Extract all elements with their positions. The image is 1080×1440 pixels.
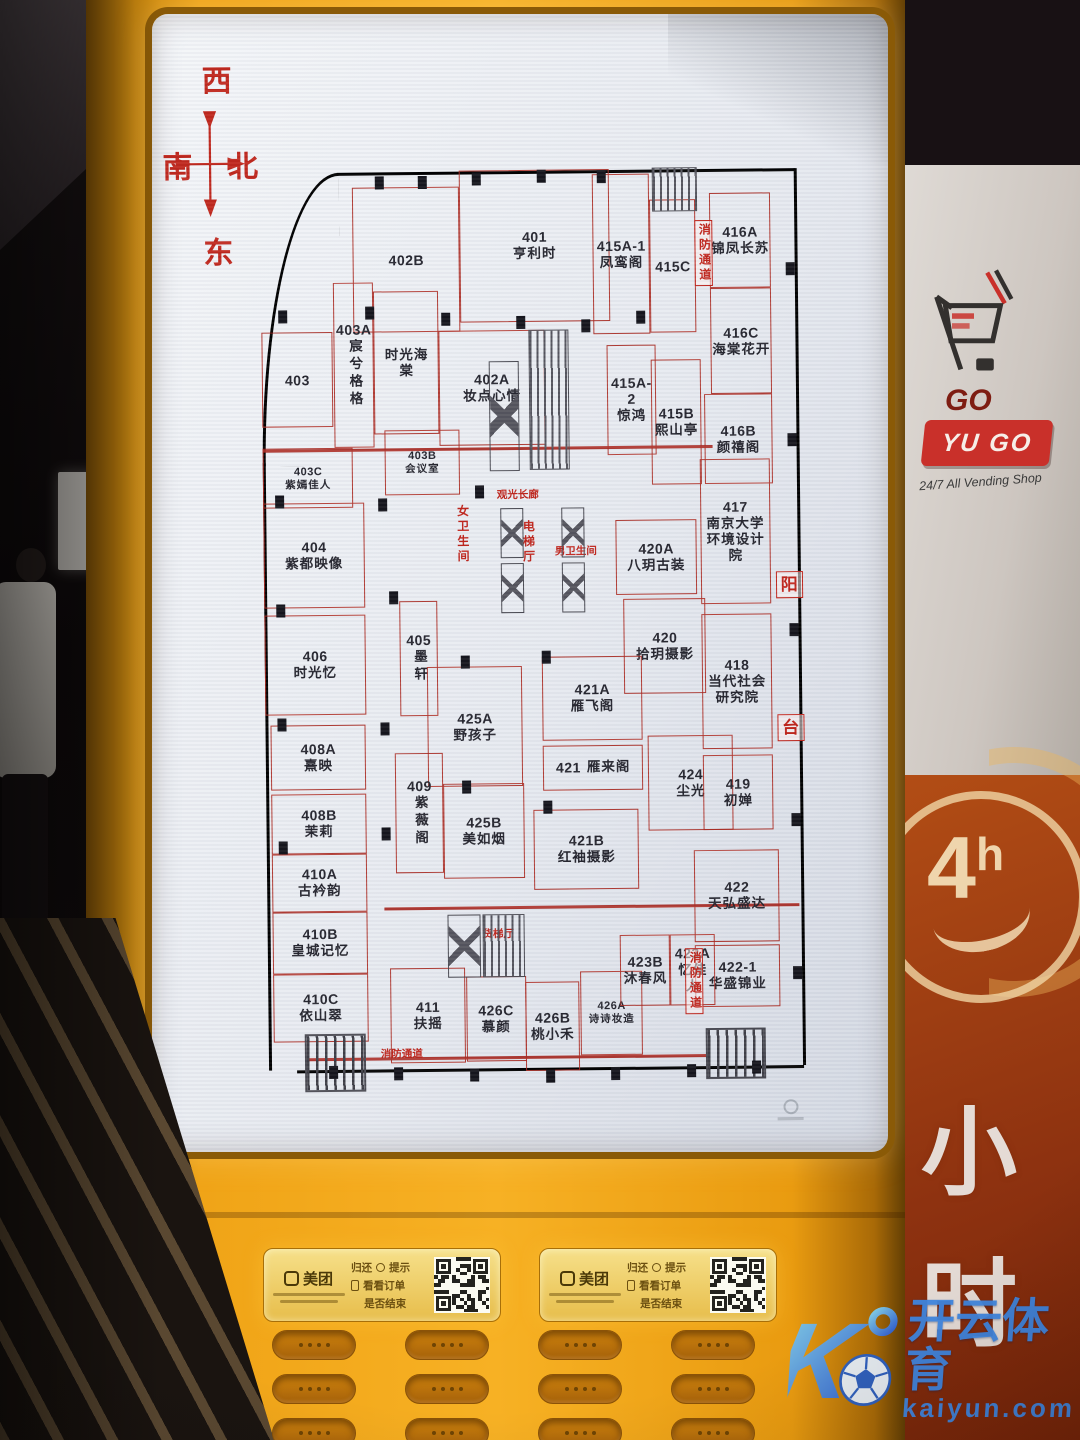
room-number: 423B	[627, 953, 663, 969]
room-416C: 416C海棠花开	[710, 288, 772, 394]
room-name: 雁飞阁	[571, 698, 615, 715]
facility-消防通道: 消防通道	[694, 220, 712, 286]
meituan-brand: 美团	[550, 1268, 619, 1303]
fine-print-line	[273, 1293, 345, 1296]
powerbank-slot	[671, 1374, 755, 1404]
door-tick	[537, 169, 546, 182]
person-legs	[2, 774, 48, 924]
hint-return: 归还	[627, 1260, 648, 1275]
room-number: 415A-2	[608, 375, 655, 407]
room-420A: 420A八玥古装	[616, 519, 697, 595]
yugo-label: YU GO	[940, 429, 1034, 458]
room-name: 亨利时	[513, 246, 557, 263]
meituan-brand: 美团	[274, 1268, 343, 1303]
hint-finished: 是否结束	[364, 1296, 406, 1311]
room-number: 406	[303, 648, 328, 664]
door-tick	[418, 176, 427, 189]
room-name: 熹映	[304, 758, 333, 774]
hint-tip: 提示	[665, 1260, 686, 1275]
hatched-area	[652, 167, 697, 212]
vendor-text-bar	[778, 1117, 804, 1120]
hint-tip: 提示	[389, 1260, 410, 1275]
door-tick	[278, 842, 287, 855]
hatched-area	[483, 914, 525, 977]
person-torso	[0, 582, 56, 778]
door-tick	[786, 262, 795, 275]
hint-check-order: 看看订单	[363, 1278, 405, 1293]
fine-print-line	[280, 1300, 338, 1303]
door-tick	[277, 718, 286, 731]
room-number: 410B	[302, 926, 338, 942]
room-number: 422-1	[718, 959, 756, 975]
room-number: 425A	[457, 710, 493, 726]
cart-icon	[919, 265, 1029, 377]
room-426C: 426C慕颜	[466, 976, 527, 1061]
screen-vendor-logo	[776, 1099, 806, 1125]
room-number: 416B	[721, 422, 757, 438]
room-number: 403B	[408, 450, 436, 462]
room-name: 古衿韵	[298, 883, 342, 900]
room-number: 415C	[655, 258, 691, 274]
room-426B: 426B桃小禾	[525, 981, 580, 1070]
facility-女卫生间: 女卫生间	[455, 505, 469, 565]
room-时光海棠: 时光海棠	[373, 291, 439, 434]
meituan-app-icon	[560, 1271, 575, 1286]
door-tick	[636, 311, 645, 324]
elevator-shaft	[500, 508, 524, 558]
room-number: 415B	[659, 405, 695, 421]
powerbank-slot	[405, 1330, 489, 1360]
door-tick	[546, 1069, 555, 1082]
room-416A: 416A锦凤长苏	[709, 193, 771, 289]
room-419: 419初婵	[703, 754, 774, 830]
room-425B: 425B美如烟	[444, 783, 525, 879]
room-number: 421	[556, 760, 581, 776]
room-410C: 410C依山翠	[273, 973, 368, 1042]
door-tick	[365, 306, 374, 319]
door-tick	[542, 651, 551, 664]
room-name: 紫都映像	[285, 556, 343, 573]
room-name: 红袖摄影	[558, 849, 616, 866]
room-name: 惊鸿	[617, 408, 646, 424]
meituan-brand-label: 美团	[579, 1268, 609, 1289]
room-name: 天弘盛达	[708, 896, 766, 913]
compass: 西 南 北 东	[161, 55, 259, 272]
door-tick	[793, 966, 802, 979]
room-421B: 421B红袖摄影	[534, 809, 640, 890]
room-name: 宸兮格格	[346, 339, 363, 409]
door-tick	[278, 310, 287, 323]
room-number: 402B	[389, 251, 425, 267]
facility-消防通道: 消防通道	[381, 1048, 423, 1061]
door-tick	[752, 1060, 761, 1073]
room-number: 408A	[301, 741, 337, 757]
yugo-badge: YU GO	[921, 420, 1054, 466]
room-name: 雁来阁	[587, 759, 631, 776]
room-number: 420A	[638, 540, 674, 556]
room-name: 会议室	[405, 463, 440, 476]
room-number: 416C	[723, 324, 759, 340]
door-tick	[517, 316, 526, 329]
door-tick	[380, 723, 389, 736]
door-tick	[276, 605, 285, 618]
staircase	[304, 1033, 366, 1093]
room-name: 墨轩	[411, 649, 428, 684]
room-number: 426B	[535, 1009, 571, 1025]
room-name: 八玥古装	[627, 557, 685, 574]
room-415A-2: 415A-2惊鸿	[607, 344, 656, 455]
hint-check-order: 看看订单	[639, 1278, 681, 1293]
powerbank-slot	[671, 1330, 755, 1360]
room-name: 紫薇阁	[411, 795, 428, 848]
compass-east-label: 东	[203, 228, 233, 272]
floorplan: 402B401亨利时415A-1凤鸾阁415C416A锦凤长苏403A宸兮格格4…	[255, 148, 807, 1105]
door-tick	[390, 591, 399, 604]
room-number: 411	[416, 999, 440, 1015]
room-404: 404紫都映像	[263, 502, 364, 609]
room-421A: 421A雁飞阁	[542, 655, 643, 741]
room-name: 慕颜	[482, 1019, 511, 1035]
door-tick	[543, 801, 552, 814]
hint-return: 归还	[351, 1260, 372, 1275]
room-name: 当代社会研究院	[706, 673, 768, 706]
door-tick	[461, 655, 470, 668]
room-number: 417	[723, 498, 748, 514]
room-name: 尘光	[676, 783, 705, 799]
room-name: 拾玥摄影	[636, 646, 694, 663]
door-tick	[596, 170, 605, 183]
meituan-brand-label: 美团	[303, 1268, 333, 1289]
powerbank-slot	[405, 1418, 489, 1440]
door-tick	[475, 486, 484, 499]
door-tick	[792, 814, 801, 827]
scene: 西 南 北 东 402B401亨利时415A-1凤鸾阁415C416A锦凤长苏4…	[0, 0, 1080, 1440]
room-403B: 403B会议室	[385, 430, 460, 495]
compass-south-label: 南	[162, 143, 192, 187]
room-number: 404	[302, 539, 327, 555]
powerbank-slot	[538, 1418, 622, 1440]
room-417: 417南京大学环境设计院	[700, 458, 772, 604]
facility-消防通道: 消防通道	[685, 948, 703, 1014]
room-name: 时光忆	[294, 665, 338, 682]
meituan-qr-panel: 美团 归还 提示 看看订单 是否结束	[263, 1248, 501, 1322]
door-tick	[275, 496, 284, 509]
hours-badge: 4h	[905, 791, 1080, 1003]
go-label: GO	[945, 384, 1069, 418]
compass-west-label: 西	[201, 56, 231, 100]
powerbank-slot	[538, 1374, 622, 1404]
powerbank-slot	[405, 1374, 489, 1404]
compass-north-label: 北	[228, 142, 258, 186]
badge-number: 4	[927, 818, 976, 917]
room-number: 408B	[301, 807, 337, 823]
door-tick	[462, 781, 471, 794]
powerbank-slot	[538, 1330, 622, 1360]
elevator-shaft	[561, 508, 585, 558]
elevator-shaft	[447, 915, 481, 978]
room-name: 茉莉	[305, 824, 334, 840]
outer-wall-right	[794, 169, 806, 1065]
watermark: K 开云体育 kaiyun.com	[786, 1296, 1080, 1422]
qr-code	[710, 1257, 766, 1313]
room-name: 熙山亭	[655, 422, 699, 439]
facility-台: 台	[777, 714, 804, 742]
room-number: 410A	[302, 866, 338, 882]
room-number: 403A	[336, 322, 372, 338]
person-silhouette	[0, 548, 70, 948]
room-408A: 408A熹映	[271, 725, 366, 791]
room-number: 422	[724, 879, 749, 895]
fine-print-line	[549, 1293, 621, 1296]
room-number: 421B	[569, 832, 605, 848]
room-number: 405	[406, 632, 431, 648]
vendor-ring-icon	[783, 1099, 798, 1114]
elevator-shaft	[561, 563, 585, 613]
room-name: 诗诗妆造	[589, 1013, 635, 1026]
phone-icon	[627, 1280, 635, 1291]
room-number: 421A	[575, 681, 611, 697]
bulb-icon	[652, 1263, 661, 1272]
door-tick	[582, 319, 591, 332]
door-tick	[472, 173, 481, 186]
room-name: 锦凤长苏	[711, 241, 769, 258]
room-number: 426C	[478, 1002, 514, 1018]
facility-观光长廊: 观光长廊	[497, 489, 539, 502]
elevator-shaft	[500, 563, 524, 613]
door-tick	[441, 313, 450, 326]
fine-print-line	[556, 1300, 614, 1303]
watermark-brand: 开云体育	[903, 1296, 1080, 1395]
rental-hints: 归还 提示 看看订单 是否结束	[351, 1260, 426, 1311]
powerbank-slot	[671, 1418, 755, 1440]
hint-finished: 是否结束	[640, 1296, 682, 1311]
door-tick	[611, 1067, 620, 1080]
k-sports-logo: K	[786, 1297, 904, 1421]
room-name: 初婵	[724, 792, 753, 808]
room-401: 401亨利时	[459, 169, 611, 323]
powerbank-slot	[272, 1374, 356, 1404]
door-tick	[374, 177, 383, 190]
room-name: 颜禧阁	[717, 439, 761, 456]
room-number: 424	[678, 766, 703, 782]
go-yugo-logo: GO YU GO 24/7 All Vending Shop	[919, 265, 1069, 488]
powerbank-slot	[272, 1418, 356, 1440]
floorplan-wrap: 西 南 北 东 402B401亨利时415A-1凤鸾阁415C416A锦凤长苏4…	[152, 14, 888, 1152]
door-tick	[470, 1068, 479, 1081]
room-number: 401	[522, 229, 547, 245]
side-kiosk-white-panel: GO YU GO 24/7 All Vending Shop	[905, 165, 1080, 775]
door-tick	[395, 1067, 404, 1080]
watermark-domain: kaiyun.com	[901, 1395, 1077, 1422]
room-415B: 415B熙山亭	[651, 359, 702, 485]
hatched-area	[529, 330, 571, 470]
room-number: 419	[726, 775, 751, 791]
room-number: 410C	[303, 991, 339, 1007]
bulb-icon	[376, 1263, 385, 1272]
door-tick	[788, 433, 797, 446]
room-number: 403	[285, 372, 310, 388]
room-number: 409	[407, 778, 432, 794]
meituan-qr-panel: 美团 归还 提示 看看订单 是否结束	[539, 1248, 777, 1322]
room-name: 沐春风	[624, 970, 668, 987]
powerbank-slot	[272, 1330, 356, 1360]
room-number: 415A-1	[597, 237, 646, 254]
room-name: 皇城记忆	[291, 943, 349, 960]
elevator-shaft	[489, 361, 520, 472]
room-410A: 410A古衿韵	[272, 853, 367, 912]
badge-unit: h	[976, 828, 1004, 880]
kiosk-seam	[86, 1212, 907, 1218]
room-name: 依山翠	[299, 1008, 343, 1025]
room-name: 桃小禾	[531, 1026, 575, 1043]
rental-hints: 归还 提示 看看订单 是否结束	[627, 1260, 702, 1311]
room-name: 紫嫣佳人	[285, 479, 331, 492]
room-name: 扶摇	[414, 1016, 443, 1032]
room-name: 华盛锦业	[709, 976, 767, 993]
vertical-char-xiao: 小	[921, 1075, 1017, 1214]
room-name: 美如烟	[462, 831, 506, 848]
room-name: 凤鸾阁	[600, 254, 644, 271]
facility-阳: 阳	[776, 571, 803, 599]
room-name: 海棠花开	[712, 341, 770, 358]
person-head	[16, 548, 46, 582]
door-tick	[687, 1064, 696, 1077]
room-409: 409紫薇阁	[395, 753, 444, 873]
room-number: 418	[724, 656, 749, 672]
side-kiosk: GO YU GO 24/7 All Vending Shop 4h 小 时	[905, 0, 1080, 1440]
room-number: 425B	[466, 814, 502, 830]
door-tick	[378, 498, 387, 511]
room-number: 420	[652, 629, 677, 645]
door-tick	[381, 827, 390, 840]
room-403: 403	[262, 332, 333, 428]
room-418: 418当代社会研究院	[701, 613, 773, 749]
phone-icon	[351, 1280, 359, 1291]
meituan-app-icon	[284, 1271, 299, 1286]
door-tick	[329, 1066, 338, 1079]
room-422: 422天弘盛达	[694, 849, 780, 942]
vending-tagline: 24/7 All Vending Shop	[919, 469, 1070, 493]
room-number: 416A	[722, 224, 758, 240]
room-name: 野孩子	[453, 727, 497, 744]
room-410B: 410B皇城记忆	[273, 911, 368, 974]
room-406: 406时光忆	[265, 615, 366, 716]
kiosk-screen: 西 南 北 东 402B401亨利时415A-1凤鸾阁415C416A锦凤长苏4…	[152, 14, 888, 1152]
room-415C: 415C	[649, 199, 696, 333]
side-kiosk-top	[905, 0, 1080, 165]
qr-code	[434, 1257, 490, 1313]
room-421: 421雁来阁	[543, 745, 644, 791]
room-423B: 423B沐春风	[620, 935, 671, 1006]
door-tick	[790, 623, 799, 636]
room-name: 南京大学环境设计院	[701, 515, 770, 564]
room-number: 403C	[294, 466, 322, 478]
room-name: 时光海棠	[384, 346, 430, 379]
